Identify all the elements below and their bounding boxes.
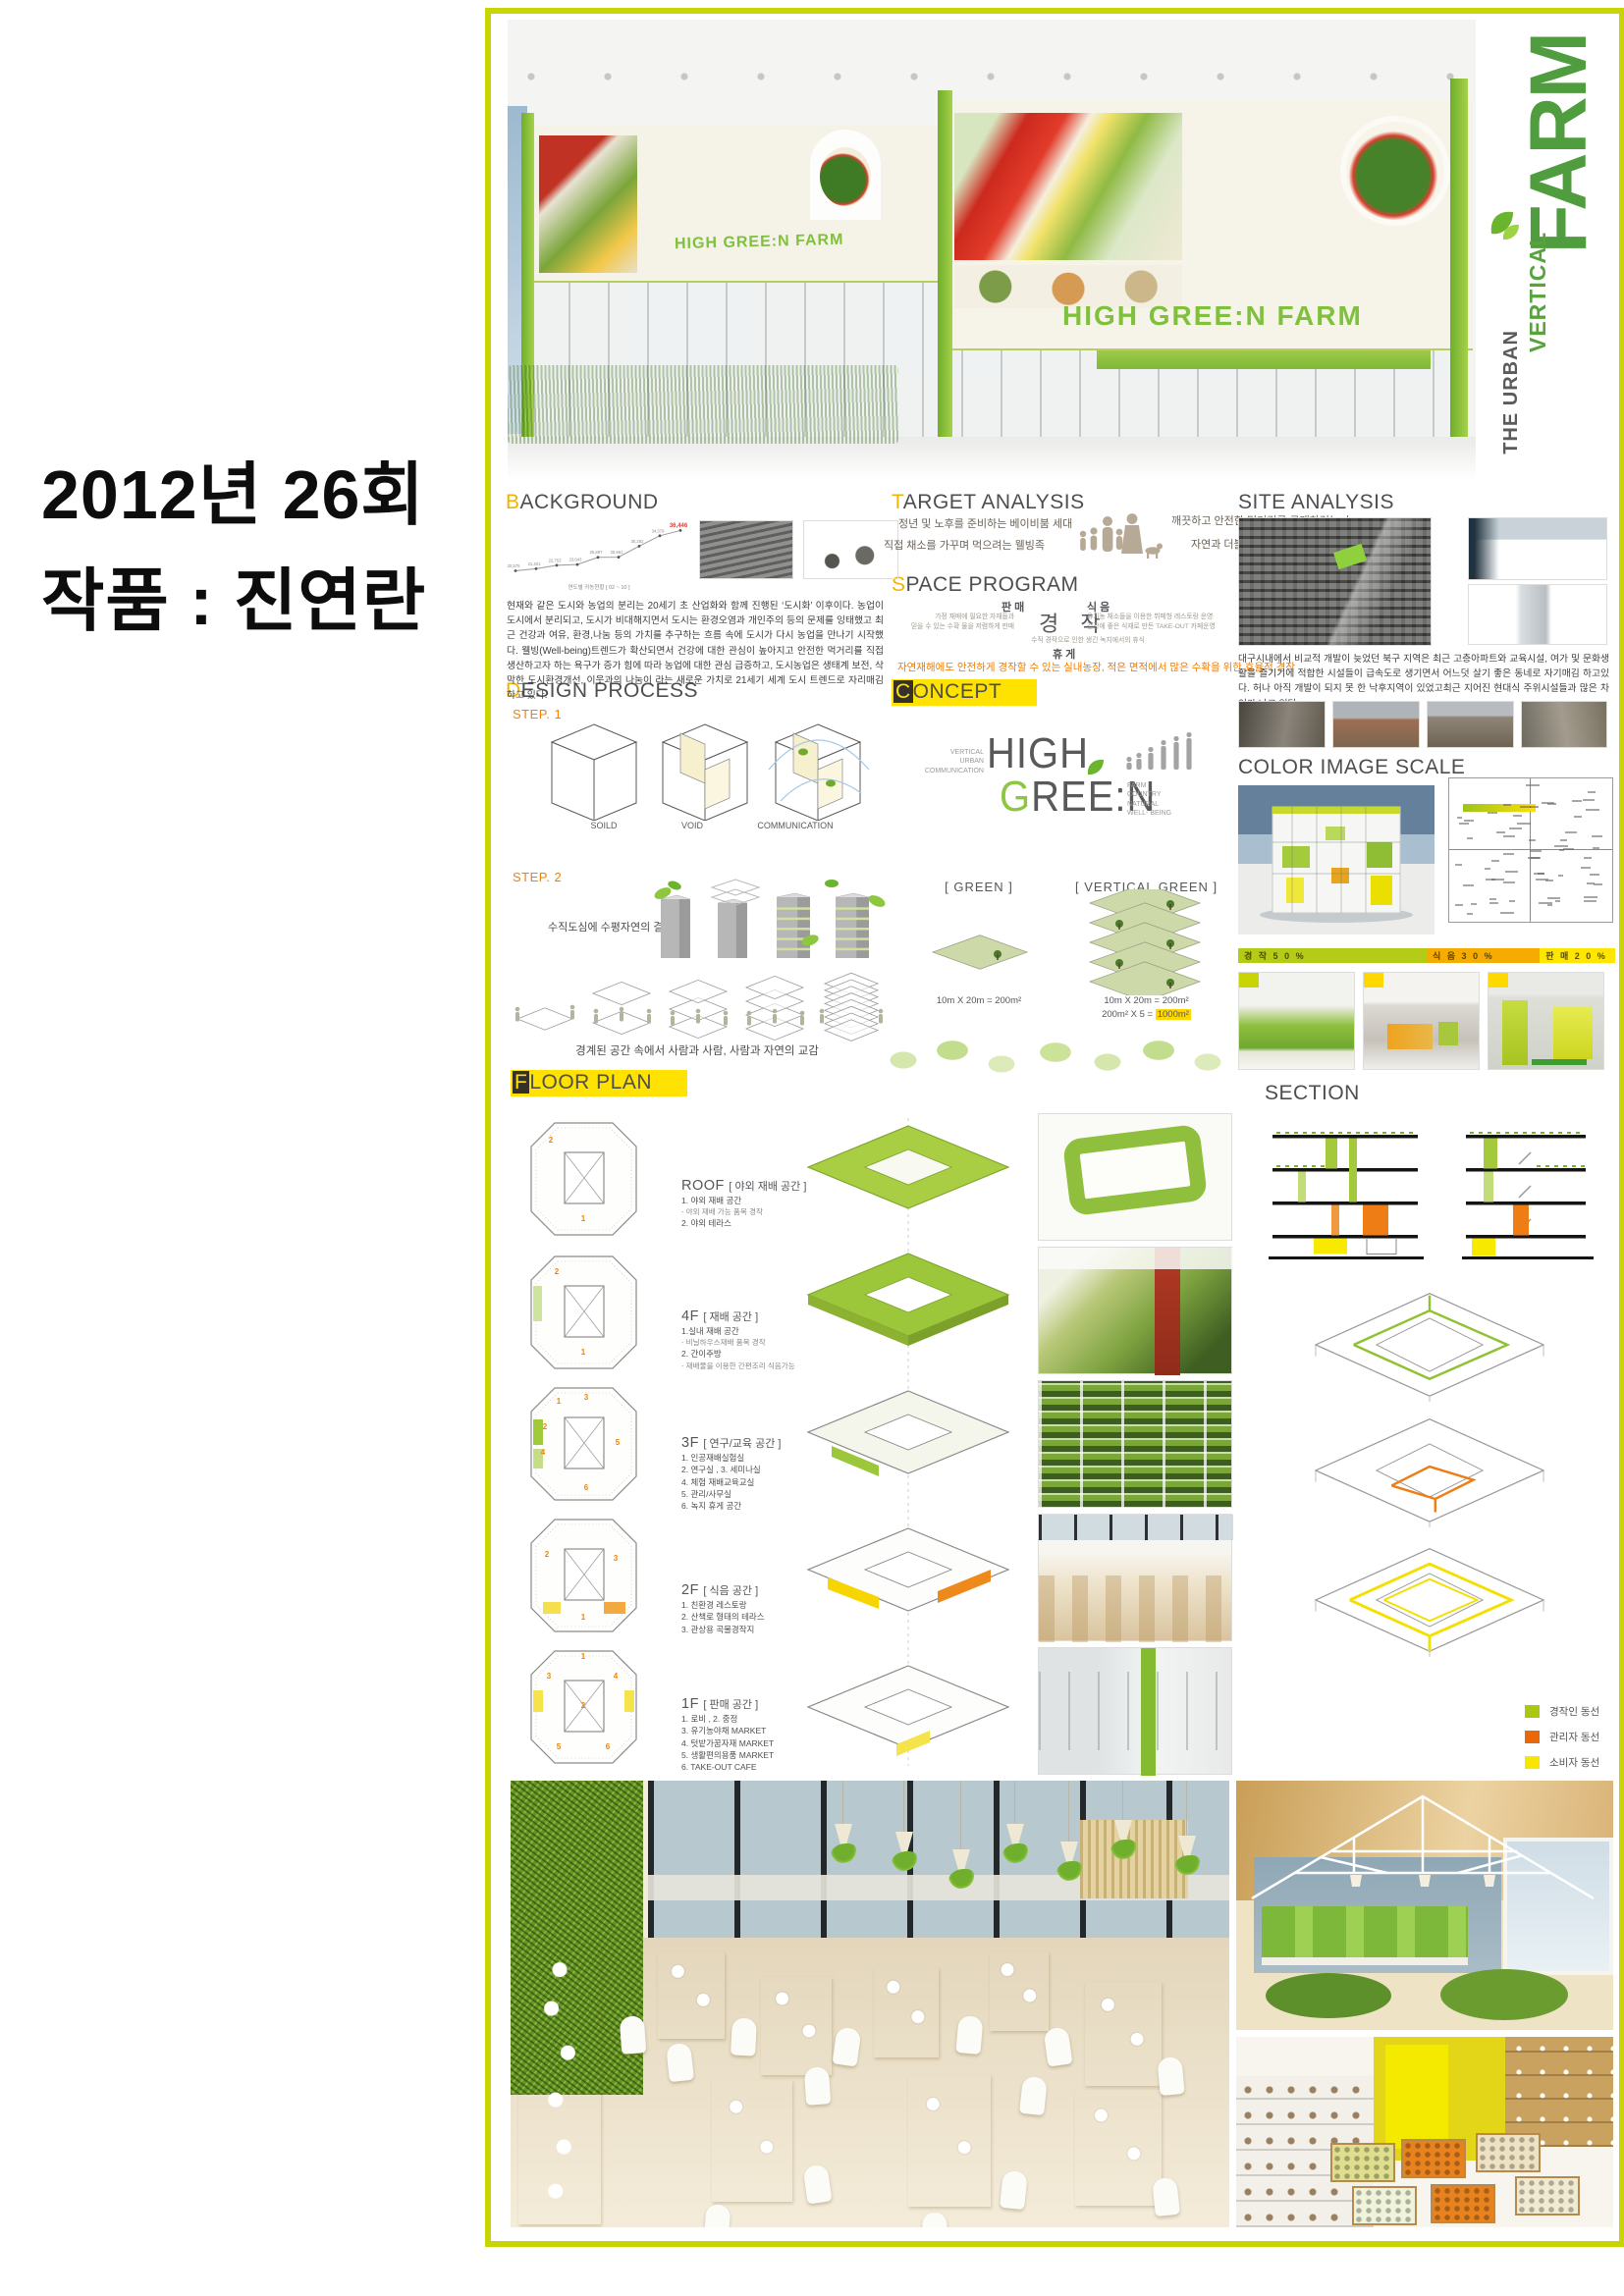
massing-cubes-diagram — [535, 722, 879, 821]
iri-color-image-scale-chart — [1448, 777, 1613, 923]
interaction-caption: 경계된 공간 속에서 사람과 사람, 사람과 자연의 교감 — [506, 1042, 889, 1058]
return-to-farming-line-chart: 20,57521,40122,75323,04325,89725,96130,2… — [506, 517, 692, 582]
vertical-nature-towers-diagram — [653, 872, 889, 962]
svg-text:2: 2 — [555, 1267, 560, 1276]
svg-text:20,575: 20,575 — [508, 563, 520, 568]
background-body: 현재와 같은 도시와 농업의 분리는 20세기 초 산업화와 함께 진행된 ‘도… — [507, 599, 884, 703]
svg-text:3: 3 — [584, 1393, 589, 1402]
program-ratio-bar: 경 작 5 0 %식 음 3 0 %판 매 2 0 % — [1238, 948, 1615, 963]
side-title-block: FARM VERTICAL THE URBAN — [1476, 20, 1607, 481]
ratio-segment: 판 매 2 0 % — [1540, 948, 1615, 963]
dining-space-render — [1363, 972, 1480, 1070]
target-item: 정년 및 노후를 준비하는 베이비붐 세대 — [898, 515, 1072, 531]
chair — [1152, 2177, 1180, 2216]
title-farm: FARM — [1513, 33, 1605, 253]
logo-leaf-icon — [1086, 758, 1108, 777]
color-scheme-building-render — [1238, 785, 1435, 934]
logo-right-words: FARM COUNTRY NATURAL WELL- BEING — [1127, 781, 1196, 819]
legend-row: 관리자 동선 — [1525, 1730, 1599, 1744]
title-the-urban: THE URBAN — [1500, 330, 1523, 454]
svg-text:6: 6 — [584, 1483, 589, 1492]
market-render-image — [1236, 2037, 1613, 2227]
white-truss-frame — [1236, 1781, 1613, 1918]
legend-swatch — [1525, 1756, 1540, 1769]
green-wall-interior-render — [1038, 1247, 1232, 1374]
produce-crate — [1401, 2139, 1466, 2178]
roof-floor-plan: 12 — [527, 1119, 640, 1239]
floor-plan-title: FLOOR PLAN — [511, 1070, 687, 1096]
green-pillar — [1450, 79, 1468, 442]
3f-floor-plan: 123456 — [527, 1384, 640, 1504]
chair — [832, 2026, 861, 2066]
screenshot-root: 2012년 26회 작품 : 진연란 HIGH GREE:N FARM HIGH… — [0, 0, 1624, 2296]
chair — [804, 2066, 832, 2106]
grass-mat — [1266, 1973, 1391, 2018]
stacked-green-planes-diagram — [1080, 889, 1210, 995]
hanging-wire — [1122, 1781, 1123, 1820]
svg-text:1: 1 — [581, 1652, 586, 1661]
aerial-site-photo — [1238, 517, 1432, 646]
step1-label: STEP. 1 — [513, 707, 562, 721]
chair — [1019, 2076, 1048, 2115]
bottle-shelf — [1505, 2037, 1613, 2147]
legend-swatch — [1525, 1705, 1540, 1718]
building-section-drawing-1 — [1269, 1119, 1424, 1264]
hanging-wire — [842, 1781, 843, 1824]
chart-caption: 연도별 귀농현황 [ 02 ~ 10 ] — [506, 583, 692, 591]
grass-mat — [1440, 1969, 1568, 2020]
green-calc: 10m X 20m = 200m² — [915, 995, 1043, 1006]
rest-desc: 수직 경작으로 인한 생긴 녹지에서의 휴식 — [990, 636, 1186, 646]
salad-arch-left — [810, 130, 881, 220]
dining-table — [874, 1967, 939, 2057]
dining-table — [658, 1952, 725, 2039]
old-neighborhood-photo — [1238, 701, 1326, 748]
chair — [1000, 2170, 1028, 2210]
restaurant-render-image — [511, 1781, 1229, 2227]
produce-crate — [1330, 2143, 1395, 2182]
site-marker — [1333, 544, 1367, 569]
food-desc: 유기농 채소들을 이용한 뷔페형 레스토랑 운영 건강에 좋은 식재로 만든 T… — [1087, 613, 1229, 632]
svg-text:25,961: 25,961 — [611, 550, 623, 555]
hanging-wire — [1068, 1781, 1069, 1842]
svg-text:6: 6 — [606, 1742, 611, 1751]
logo-high: HIGH — [987, 730, 1089, 778]
vegetable-photo-center — [954, 113, 1182, 260]
farm-field-photo — [699, 520, 793, 579]
people-planes-diagram — [506, 972, 889, 1042]
target-analysis-title: TARGET ANALYSIS — [892, 491, 1085, 514]
ratio-segment: 식 음 3 0 % — [1427, 948, 1540, 963]
street-photo-2 — [1468, 584, 1607, 645]
competition-year-title: 2012년 26회 — [41, 440, 425, 539]
long-counter — [518, 1948, 601, 2224]
hanging-wire — [1014, 1781, 1015, 1824]
chair — [666, 2043, 694, 2082]
sale-desc: 가정 재배에 필요한 자재들과 믿을 수 있는 수확 물을 저렴하게 판매 — [892, 613, 1014, 632]
bamboo-screen — [1080, 1820, 1188, 1898]
cube-label-solid: SOILD — [565, 821, 643, 830]
svg-text:4: 4 — [614, 1672, 619, 1681]
svg-text:34,379: 34,379 — [652, 528, 665, 533]
old-neighborhood-photo — [1332, 701, 1420, 748]
produce-crate — [1515, 2176, 1580, 2216]
site-analysis-title: SITE ANALYSIS — [1238, 491, 1394, 514]
cube-label-void: VOID — [653, 821, 731, 830]
target-item: 직접 채소를 가꾸며 먹으려는 웰빙족 — [884, 537, 1045, 553]
hero-banner-text-right: HIGH GREE:N FARM — [1062, 300, 1363, 332]
space-program-highlight: 자연재해에도 안전하게 경작할 수 있는 실내농장, 적은 면적에서 많은 수확… — [897, 660, 1295, 674]
hanging-wire — [903, 1781, 904, 1832]
legend-row: 경작인 동선 — [1525, 1704, 1599, 1719]
step2-label: STEP. 2 — [513, 870, 562, 884]
vertical-hydroponics-render — [1038, 1380, 1232, 1508]
old-neighborhood-photo — [1521, 701, 1607, 748]
produce-crate — [1476, 2133, 1541, 2172]
street-photo-1 — [1468, 517, 1607, 580]
green-pillar — [938, 90, 952, 442]
chair — [1157, 2056, 1184, 2096]
manager-circulation-diagram — [1253, 1412, 1606, 1527]
svg-text:21,401: 21,401 — [528, 561, 541, 566]
concept-title: CONCEPT — [892, 679, 1037, 706]
logo-left-words: VERTICAL URBAN COMMUNICATION — [913, 748, 984, 775]
salad-bowl-photo — [1340, 116, 1450, 226]
exploded-axonometric-diagram — [781, 1108, 1031, 1776]
poster-board: HIGH GREE:N FARM HIGH GREE:N FARM FARM V… — [485, 8, 1624, 2247]
produce-crate — [1352, 2186, 1417, 2225]
circulation-legend: 경작인 동선관리자 동선소비자 동선 — [1525, 1704, 1599, 1781]
building-section-drawing-2 — [1458, 1119, 1594, 1264]
dining-table — [712, 2080, 792, 2202]
section-title: SECTION — [1265, 1082, 1360, 1105]
dining-table — [1085, 1982, 1162, 2086]
vegetable-photo-left — [539, 135, 637, 273]
consumer-circulation-diagram — [1253, 1541, 1606, 1657]
svg-text:1: 1 — [557, 1397, 562, 1406]
farming-space-render — [1238, 972, 1355, 1070]
svg-text:1: 1 — [581, 1214, 586, 1223]
greenhouse-render-image — [1236, 1781, 1613, 2030]
dining-table — [990, 1952, 1049, 2031]
artwork-author-title: 작품 : 진연란 — [41, 546, 426, 645]
family-silhouette-icon — [1075, 510, 1164, 561]
title-vertical: VERTICAL — [1525, 232, 1551, 352]
hanging-wire — [960, 1781, 961, 1849]
cube-label-communication: COMMUNICATION — [741, 821, 849, 830]
ratio-segment: 경 작 5 0 % — [1238, 948, 1427, 963]
svg-text:25,897: 25,897 — [590, 550, 603, 555]
legend-row: 소비자 동선 — [1525, 1755, 1599, 1770]
hanging-wire — [1186, 1781, 1187, 1836]
chair — [731, 2017, 757, 2056]
dining-table — [908, 2075, 991, 2207]
single-green-plane-diagram — [925, 919, 1035, 982]
restaurant-interior-render — [1038, 1514, 1232, 1641]
svg-text:1: 1 — [581, 1348, 586, 1357]
building-exterior-render — [1038, 1647, 1232, 1775]
svg-text:4: 4 — [541, 1448, 546, 1457]
market-space-render — [1488, 972, 1604, 1070]
old-neighborhood-photo — [1427, 701, 1514, 748]
chair — [620, 2015, 647, 2055]
2f-floor-plan: 123 — [527, 1516, 640, 1635]
svg-text:5: 5 — [616, 1438, 621, 1447]
space-program-title: SPACE PROGRAM — [892, 573, 1078, 597]
1f-floor-plan: 123456 — [527, 1647, 640, 1767]
svg-text:3: 3 — [547, 1672, 552, 1681]
farmer-circulation-diagram — [1253, 1286, 1606, 1402]
hero-render-image: HIGH GREE:N FARM HIGH GREE:N FARM — [508, 20, 1476, 481]
green-label: [ GREEN ] — [915, 880, 1043, 894]
highlighted-area-value: 1000m² — [1156, 1009, 1191, 1020]
chair — [704, 2204, 731, 2227]
svg-text:2: 2 — [545, 1550, 550, 1559]
roof-garden-render — [1038, 1113, 1232, 1241]
legend-swatch — [1525, 1731, 1540, 1743]
grass-bed — [508, 365, 898, 444]
dining-table — [761, 1977, 832, 2075]
vertical-green-calc2: 200m² X 5 = 1000m² — [1075, 1009, 1218, 1020]
leaf-icon — [1488, 208, 1523, 241]
vertical-green-calc1: 10m X 20m = 200m² — [1075, 995, 1218, 1006]
svg-text:3: 3 — [614, 1554, 619, 1563]
svg-text:5: 5 — [557, 1742, 562, 1751]
svg-text:2: 2 — [581, 1701, 586, 1710]
leaf-border-graphic — [884, 1021, 1233, 1078]
background-title: BACKGROUND — [506, 491, 659, 514]
svg-text:23,043: 23,043 — [569, 558, 582, 562]
dining-table — [1075, 2090, 1162, 2206]
produce-crate — [1431, 2184, 1495, 2223]
people-group-icon — [1124, 732, 1195, 772]
svg-text:36,446: 36,446 — [670, 523, 688, 529]
svg-text:30,292: 30,292 — [631, 539, 644, 544]
color-image-scale-title: COLOR IMAGE SCALE — [1238, 756, 1465, 779]
svg-text:2: 2 — [549, 1136, 554, 1145]
chair — [955, 2015, 983, 2055]
svg-text:1: 1 — [581, 1613, 586, 1622]
svg-text:2: 2 — [543, 1422, 548, 1431]
4f-floor-plan: 12 — [527, 1253, 640, 1372]
svg-text:22,753: 22,753 — [549, 558, 562, 562]
